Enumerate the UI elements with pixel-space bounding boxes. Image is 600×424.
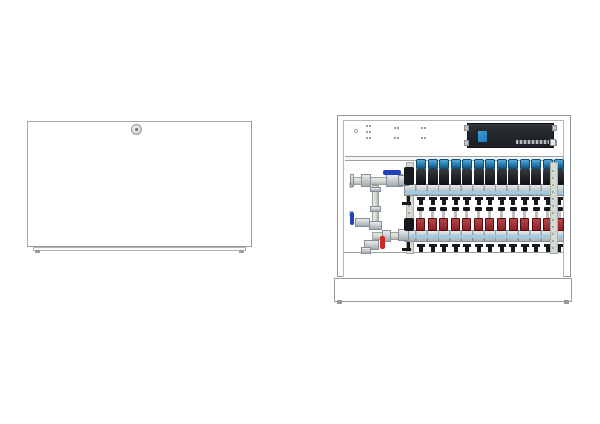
flow-meter-row — [416, 207, 564, 231]
actuator-blue-cap — [474, 159, 484, 169]
thermal-actuator — [439, 159, 449, 185]
cabinet-plinth — [334, 278, 572, 302]
key-hole — [354, 129, 358, 133]
fill-drain-valve-red-lever — [380, 236, 385, 249]
flow-meter — [439, 207, 448, 231]
flow-meter-red-body — [474, 218, 483, 231]
door-bottom-trim — [33, 247, 246, 251]
pipe-connection-cap — [417, 197, 425, 205]
actuator-blue-cap — [428, 159, 438, 169]
pipe-connection-cap — [532, 244, 540, 252]
pipe-connection-cap — [498, 197, 506, 205]
flow-meter — [485, 207, 494, 231]
supply-connection-row — [417, 197, 563, 205]
flow-meter-red-body — [462, 218, 471, 231]
flow-meter-stem — [546, 211, 549, 218]
pipe-connection-cap — [486, 197, 494, 205]
flow-meter-red-body — [532, 218, 541, 231]
flow-meter-red-body — [509, 218, 518, 231]
flow-meter-red-body — [439, 218, 448, 231]
manifold-blue-stripe — [405, 235, 563, 238]
riser-elbow — [369, 221, 382, 230]
flow-meter-red-body — [485, 218, 494, 231]
manifold-blue-stripe — [405, 191, 563, 194]
flow-meter-stem — [558, 211, 561, 218]
mounting-hole — [421, 127, 423, 129]
wiring-center-unit — [467, 123, 554, 148]
flow-meter-stem — [419, 211, 422, 218]
pipe-connection-cap — [521, 197, 529, 205]
mounting-hole — [394, 137, 396, 139]
pipe-connection-cap — [509, 197, 517, 205]
pipe-connection-cap — [452, 197, 460, 205]
actuator-blue-cap — [497, 159, 507, 169]
pipe-connection-cap — [532, 197, 540, 205]
flow-meter — [462, 207, 471, 231]
pipe-connection-cap — [429, 244, 437, 252]
riser-top-nut — [370, 187, 381, 192]
flow-meter-red-body — [520, 218, 529, 231]
thermal-actuator — [520, 159, 530, 185]
actuator-blue-cap — [416, 159, 426, 169]
flow-meter-red-body — [428, 218, 437, 231]
manifold-end-cap-black-lower — [404, 218, 414, 231]
thermal-actuator — [497, 159, 507, 185]
drain-valve-lower — [402, 242, 412, 252]
mounting-hole — [366, 137, 368, 139]
flow-meter — [451, 207, 460, 231]
actuator-body — [508, 169, 518, 185]
pipe-connection-cap — [521, 244, 529, 252]
actuator-body — [485, 169, 495, 185]
flow-meter-stem — [465, 211, 468, 218]
thermal-actuator — [474, 159, 484, 185]
actuator-body — [497, 169, 507, 185]
manifold-end-cap-black-upper — [404, 167, 414, 185]
actuator-body — [462, 169, 472, 185]
flow-meter — [474, 207, 483, 231]
thermal-actuator — [531, 159, 541, 185]
actuator-blue-cap — [439, 159, 449, 169]
terminal-strip — [516, 140, 549, 144]
flow-meter-stem — [488, 211, 491, 218]
pipe-connection-cap — [429, 197, 437, 205]
mounting-tab — [552, 125, 557, 131]
thermal-actuator — [451, 159, 461, 185]
return-manifold-bar — [404, 230, 564, 242]
actuator-row — [416, 159, 564, 185]
pipe-connection-cap — [452, 244, 460, 252]
wall-flange — [350, 174, 354, 187]
actuator-body — [474, 169, 484, 185]
thermal-actuator — [508, 159, 518, 185]
interior-floor-line — [344, 252, 563, 253]
thermal-actuator — [462, 159, 472, 185]
mounting-hole — [366, 131, 368, 133]
actuator-blue-cap — [451, 159, 461, 169]
pipe-connection-cap — [475, 244, 483, 252]
pipe-connection-cap — [475, 197, 483, 205]
flow-meter-stem — [523, 211, 526, 218]
fill-drain-elbow — [361, 247, 371, 254]
flow-meter-stem — [442, 211, 445, 218]
pipe-connection-cap — [486, 244, 494, 252]
actuator-body — [531, 169, 541, 185]
product-illustration — [0, 0, 600, 424]
actuator-body — [428, 169, 438, 185]
supply-manifold-bar — [404, 184, 564, 196]
actuator-body — [416, 169, 426, 185]
mounting-tab — [464, 140, 469, 146]
flow-meter-stem — [431, 211, 434, 218]
mounting-hole — [421, 137, 423, 139]
flow-meter — [509, 207, 518, 231]
flow-meter — [532, 207, 541, 231]
actuator-blue-cap — [462, 159, 472, 169]
flow-meter-red-body — [416, 218, 425, 231]
cabinet-door-front — [27, 121, 252, 247]
riser-union-nut — [370, 206, 381, 212]
door-lock-icon — [131, 124, 142, 135]
support-bracket-right — [550, 162, 558, 254]
isolation-valve-blue-lever — [350, 212, 354, 225]
pipe-connection-cap — [509, 244, 517, 252]
return-connection-row — [417, 244, 563, 252]
mounting-hole — [366, 125, 368, 127]
actuator-body — [520, 169, 530, 185]
mounting-tab — [464, 125, 469, 131]
actuator-blue-cap — [531, 159, 541, 169]
brand-logo-mark — [478, 131, 487, 142]
mounting-hole — [394, 127, 396, 129]
pipe-connection-cap — [463, 244, 471, 252]
terminal-end-cap — [550, 139, 556, 146]
flow-meter-red-body — [451, 218, 460, 231]
supply-valve-blue-lever — [383, 170, 401, 175]
actuator-blue-cap — [485, 159, 495, 169]
pipe-connection-cap — [440, 244, 448, 252]
union-nut — [361, 174, 371, 187]
flow-meter — [416, 207, 425, 231]
flow-meter-stem — [454, 211, 457, 218]
pipe-connection-cap — [417, 244, 425, 252]
flow-meter — [520, 207, 529, 231]
pipe-connection-cap — [440, 197, 448, 205]
actuator-blue-cap — [520, 159, 530, 169]
flow-meter-stem — [512, 211, 515, 218]
isolation-valve-body — [355, 218, 370, 227]
thermal-actuator — [428, 159, 438, 185]
flow-meter — [428, 207, 437, 231]
pipe-connection-cap — [463, 197, 471, 205]
pipe-connection-cap — [498, 244, 506, 252]
actuator-body — [439, 169, 449, 185]
thermal-actuator — [416, 159, 426, 185]
thermal-actuator — [485, 159, 495, 185]
actuator-body — [451, 169, 461, 185]
flow-meter-red-body — [497, 218, 506, 231]
flow-meter — [497, 207, 506, 231]
drain-valve-upper — [402, 196, 412, 206]
flow-meter-stem — [500, 211, 503, 218]
flow-meter-stem — [535, 211, 538, 218]
actuator-blue-cap — [508, 159, 518, 169]
flow-meter-stem — [477, 211, 480, 218]
